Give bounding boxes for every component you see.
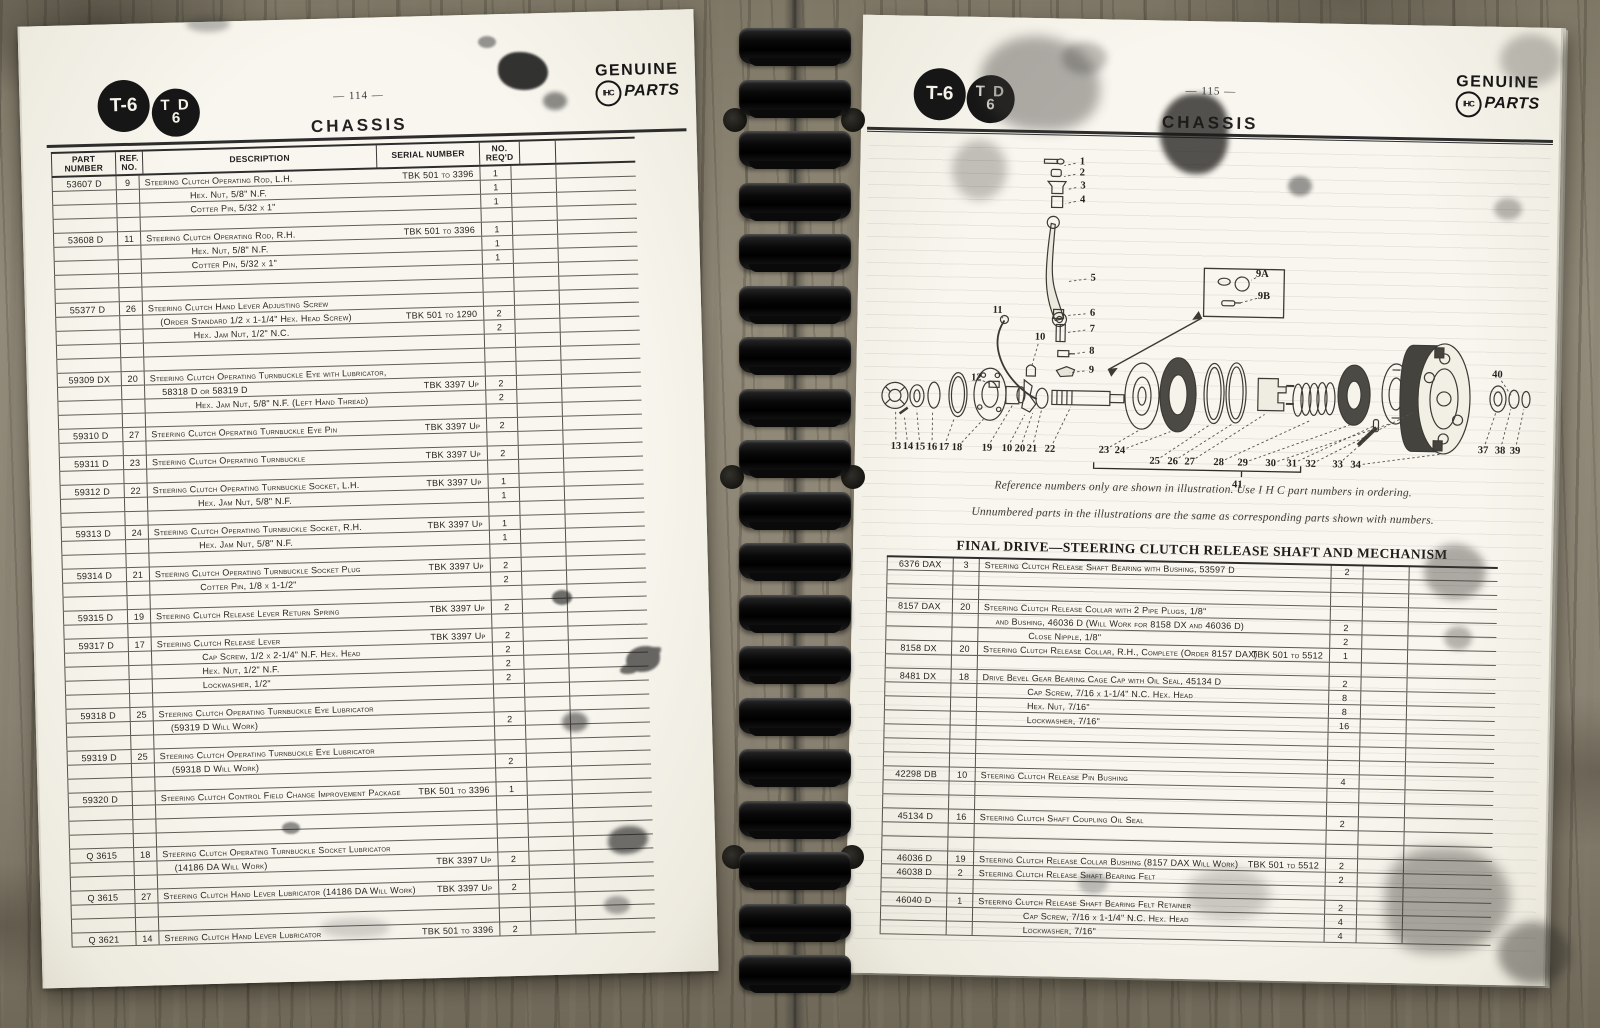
part-number-cell [57,386,122,401]
blank-cell [527,767,572,781]
part-number-cell [54,274,119,289]
part-number-cell [884,696,951,710]
part-number-cell: 8481 DX [884,668,951,682]
row-extension [559,247,638,262]
ref-no-cell [122,386,145,400]
qty-cell: 2 [1327,817,1359,831]
blank-cell [521,529,566,543]
row-extension [1406,734,1494,749]
ref-no-cell [122,400,145,414]
qty-cell [483,278,514,292]
qty-cell [485,348,516,362]
ref-no-cell [123,414,146,428]
qty-cell [494,684,525,698]
part-number-cell [71,918,136,933]
qty-cell [492,614,523,628]
row-extension [556,163,635,178]
row-extension [563,429,642,444]
blank-cell [519,473,564,487]
blank-cell [512,207,557,221]
part-number-cell [53,218,118,233]
qty-cell: 2 [493,656,524,670]
diagram-callout-33: 33 [1332,459,1343,470]
diagram-callout-3: 3 [1080,180,1085,191]
part-number-cell [883,738,950,752]
ref-no-cell [121,344,144,358]
blank-cell [1359,803,1405,817]
qty-cell [1325,887,1357,901]
ref-no-cell [128,623,151,637]
part-number-cell [60,498,125,513]
qty-cell [495,740,526,754]
ref-no-cell [124,470,147,484]
diagram-callout-27: 27 [1184,456,1195,467]
blank-cell [525,697,570,711]
part-number-cell: 59318 D [65,708,130,723]
qty-cell: 1 [482,222,513,236]
part-number-cell [886,570,953,584]
ref-no-cell: 20 [953,600,979,613]
part-number-cell [70,876,135,891]
ref-no-cell [951,712,977,725]
diagram-callout-29: 29 [1237,457,1248,468]
diagram-callout-18: 18 [952,442,963,453]
row-extension [568,624,647,639]
diagram-callout-31: 31 [1286,458,1297,469]
qty-cell [1331,593,1363,607]
blank-cell [515,291,560,305]
ref-no-cell: 18 [134,847,157,861]
row-extension [563,401,642,416]
part-number-cell [61,554,126,569]
row-extension [1408,622,1496,637]
blank-cell [1361,705,1407,719]
part-number-cell [59,470,124,485]
blank-cell [523,613,568,627]
part-number-cell [58,414,123,429]
blank-cell [529,850,574,864]
qty-cell [1331,579,1363,593]
qty-cell [487,432,518,446]
blank-cell [1363,607,1409,621]
qty-cell [495,726,526,740]
ref-no-cell [117,204,140,218]
qty-cell: 1 [488,474,519,488]
blank-cell [522,571,567,585]
diagram-callout-4: 4 [1080,194,1085,205]
header-serial-number: SERIAL NUMBER [377,143,481,168]
blank-cell [522,585,567,599]
part-number-cell: 59320 D [68,792,133,807]
part-number-cell [54,288,119,303]
row-extension [567,569,646,584]
qty-cell: 2 [492,600,523,614]
row-extension [1405,818,1493,833]
blank-cell [526,739,571,753]
part-number-cell: 59310 D [58,428,123,443]
part-number-cell: 6376 DAX [887,556,954,570]
ihc-logo-icon-right: IHC [1455,91,1481,117]
qty-cell: 1 [482,236,513,250]
ref-no-cell [131,721,154,735]
ref-no-cell [126,554,149,568]
binding-ring [739,234,851,270]
row-extension [557,205,636,220]
blank-cell [520,501,565,515]
row-extension [1408,664,1496,679]
ref-no-cell: 18 [951,670,977,683]
qty-cell: 2 [484,306,515,320]
ref-no-cell [953,614,979,627]
ref-no-cell [121,330,144,344]
blank-cell [525,669,570,683]
row-extension [563,415,642,430]
qty-cell [1326,831,1358,845]
ref-no-cell [952,628,978,641]
part-number-cell [69,834,134,849]
blank-cell [518,431,563,445]
row-extension [568,597,647,612]
diagram-callout-2: 2 [1080,167,1085,178]
blank-cell [1360,747,1406,761]
ref-no-cell [133,805,156,819]
row-extension [558,219,637,234]
ref-no-cell [125,498,148,512]
ref-no-cell [135,875,158,889]
part-number-cell [68,820,133,835]
binding-ring [739,904,851,940]
row-extension [1407,706,1495,721]
ref-no-cell [118,246,141,260]
blank-cell [1361,677,1407,691]
part-number-cell [60,512,125,527]
part-number-cell: 55377 D [55,302,120,317]
qty-cell: 2 [1326,873,1358,887]
diagram-callout-10: 10 [1002,443,1013,454]
ref-no-cell: 24 [126,526,149,540]
row-extension [571,722,650,737]
part-number-cell: 59319 D [67,750,132,765]
row-extension [1405,776,1493,791]
part-number-cell [885,654,952,668]
row-extension [1406,762,1494,777]
row-extension [1407,692,1495,707]
ref-no-cell [949,782,975,795]
header-ref-no: REF. NO. [116,152,144,175]
qty-cell: 2 [492,628,523,642]
photo-of-open-parts-manual: { "branding": { "model_badge_1": "T-6", … [0,0,1600,1028]
diagram-callout-23: 23 [1099,445,1110,456]
ref-no-cell [117,190,140,204]
diagram-callout-38: 38 [1495,445,1506,456]
part-number-cell [68,806,133,821]
ref-no-cell: 26 [120,302,143,316]
qty-cell: 2 [491,558,522,572]
qty-cell [489,502,520,516]
row-extension [566,541,645,556]
diagram-callout-24: 24 [1115,445,1126,456]
row-extension [560,317,639,332]
ref-no-cell [950,754,976,767]
qty-cell [499,866,530,880]
ref-no-cell [136,903,159,917]
ref-no-cell: 9 [116,176,139,190]
diagram-callout-17: 17 [939,442,950,453]
blank-cell [1359,789,1405,803]
row-extension [566,513,645,528]
ref-no-cell: 11 [118,232,141,246]
ref-no-cell [127,595,150,609]
binding-ring [739,28,851,64]
part-number-cell [64,652,129,667]
qty-cell: 2 [1329,677,1361,691]
blank-cell [1357,887,1403,901]
part-number-cell [52,190,117,205]
ref-no-cell [120,316,143,330]
part-number-cell [55,316,120,331]
qty-cell [497,810,528,824]
blank-cell [1359,775,1405,789]
diagram-callout-16: 16 [927,442,938,453]
qty-cell: 1 [490,530,521,544]
blank-cell [521,543,566,557]
parts-label: PARTS [624,83,680,101]
ref-no-cell: 2 [948,865,974,878]
row-extension [1407,720,1495,735]
diagram-callout-6: 6 [1090,308,1095,319]
diagram-callout-15: 15 [915,441,926,452]
blank-cell [523,627,568,641]
qty-cell: 2 [494,670,525,684]
blank-cell [517,375,562,389]
ref-no-cell [951,684,977,697]
blank-cell [1358,845,1404,859]
row-extension [567,583,646,598]
qty-cell [494,698,525,712]
binding-ring [739,543,851,579]
qty-cell: 2 [500,922,531,936]
row-extension [1408,650,1496,665]
blank-cell [1362,663,1408,677]
diagram-callout-8: 8 [1089,346,1094,357]
ref-no-cell [136,917,159,931]
part-number-cell: 8158 DX [885,640,952,654]
blank-cell [1361,719,1407,733]
qty-cell [491,586,522,600]
row-extension [560,303,639,318]
row-extension [568,611,647,626]
qty-cell: 2 [493,642,524,656]
blank-cell [518,403,563,417]
blank-cell [513,235,558,249]
ref-no-cell: 19 [128,609,151,623]
qty-cell: 1 [489,488,520,502]
ref-no-cell [118,218,141,232]
qty-cell: 1 [1330,649,1362,663]
row-extension [567,555,646,570]
qty-cell: 2 [1330,621,1362,635]
row-extension [575,876,654,891]
qty-cell: 8 [1329,705,1361,719]
blank-cell [1357,901,1403,915]
row-extension [1403,930,1491,945]
qty-cell [484,292,515,306]
ref-no-cell [948,824,974,837]
diagram-callout-20: 20 [1015,443,1026,454]
part-number-cell [56,330,121,345]
ref-no-cell [133,791,156,805]
ref-no-cell [129,651,152,665]
blank-cell [514,249,559,263]
release-lever-part [1045,223,1065,320]
ref-no-cell: 27 [123,428,146,442]
ref-no-cell [947,907,973,920]
row-extension [576,904,655,919]
part-number-cell [66,736,131,751]
row-extension [1409,608,1497,623]
part-number-cell [884,682,951,696]
diagram-callout-19: 19 [982,443,993,454]
diagram-callout-32: 32 [1305,459,1316,470]
diagram-callout-9A: 9A [1256,269,1269,280]
part-number-cell: 59314 D [62,568,127,583]
qty-cell: 1 [480,166,511,180]
row-extension [570,666,649,681]
genuine-parts-logo-right: GENUINE IHCPARTS [1455,74,1540,118]
blank-cell [511,165,556,179]
left-page: T-6 T D 6 — 114 — GENUINE IHCPARTS CHASS… [18,9,719,988]
qty-cell: 2 [1326,859,1358,873]
diagram-callout-11: 11 [993,305,1003,316]
blank-cell [512,179,557,193]
blank-cell [515,305,560,319]
qty-cell [483,264,514,278]
qty-cell: 2 [491,572,522,586]
row-extension [559,261,638,276]
ref-no-cell: 1 [947,893,973,906]
row-extension [559,275,638,290]
qty-cell [1331,607,1363,621]
diagram-callout-25: 25 [1149,456,1160,467]
qty-cell [486,362,517,376]
row-extension [575,890,654,905]
qty-cell [488,460,519,474]
row-extension [561,331,640,346]
ref-no-cell: 27 [135,889,158,903]
row-extension [572,778,651,793]
qty-cell [496,768,527,782]
row-extension [570,680,649,695]
blank-cell [524,641,569,655]
binding-ring [739,131,851,167]
ref-no-cell [134,861,157,875]
parts-label-right: PARTS [1484,96,1540,114]
qty-cell: 2 [1325,901,1357,915]
ref-no-cell [121,358,144,372]
qty-cell: 2 [1330,635,1362,649]
qty-cell: 4 [1327,775,1359,789]
part-number-cell [67,778,132,793]
header-extension [556,139,636,163]
blank-cell [530,878,575,892]
part-number-cell [65,694,130,709]
qty-cell [500,908,531,922]
part-number-cell: Q 3615 [69,848,134,863]
diagram-callout-30: 30 [1265,458,1276,469]
ref-no-cell [133,819,156,833]
blank-cell [1362,635,1408,649]
blank-cell [527,753,572,767]
row-extension [1404,846,1492,861]
ref-no-cell [132,763,155,777]
part-number-cell [883,724,950,738]
blank-cell [1363,579,1409,593]
row-extension [569,652,648,667]
row-extension [1403,902,1491,917]
qty-cell: 2 [495,712,526,726]
qty-cell: 1 [490,516,521,530]
blank-cell [528,795,573,809]
ref-no-cell: 23 [124,456,147,470]
blank-cell [518,417,563,431]
ihc-logo-icon: IHC [595,80,622,107]
qty-cell: 2 [499,880,530,894]
row-extension [1406,748,1494,763]
part-number-cell [886,612,953,626]
ref-no-cell [953,586,979,599]
diagram-callouts: 1234567891110129A9B131415161718191020212… [863,15,1561,28]
diagram-callout-9B: 9B [1258,291,1270,302]
part-number-cell: 59317 D [64,638,129,653]
binding-ring [739,337,851,373]
diagram-callout-28: 28 [1213,457,1224,468]
ref-no-cell [950,726,976,739]
blank-cell [1363,593,1409,607]
qty-cell [1328,761,1360,775]
ref-no-cell: 3 [954,558,980,571]
part-number-cell [69,862,134,877]
ref-no-cell [129,665,152,679]
header-blank-col [520,141,557,164]
part-number-cell: Q 3621 [71,932,136,947]
qty-cell: 2 [496,754,527,768]
part-number-cell [880,878,947,892]
blank-cell [521,515,566,529]
row-extension [564,443,643,458]
blank-cell [516,361,561,375]
row-extension [565,485,644,500]
row-extension [1407,678,1495,693]
row-extension [562,373,641,388]
row-extension [572,750,651,765]
diagram-callout-9: 9 [1089,365,1094,376]
blank-cell [527,781,572,795]
blank-cell [1360,733,1406,747]
row-extension [1408,636,1496,651]
ref-no-cell: 20 [952,642,978,655]
ref-no-cell: 22 [125,484,148,498]
row-extension [557,177,636,192]
part-number-cell: 8157 DAX [886,598,953,612]
binding-ring [739,595,851,631]
blank-cell [530,864,575,878]
part-number-cell: 46040 D [880,892,947,906]
blank-cell [1359,817,1405,831]
blank-cell [526,711,571,725]
ref-no-cell: 17 [129,637,152,651]
row-extension [562,387,641,402]
qty-cell [498,824,529,838]
